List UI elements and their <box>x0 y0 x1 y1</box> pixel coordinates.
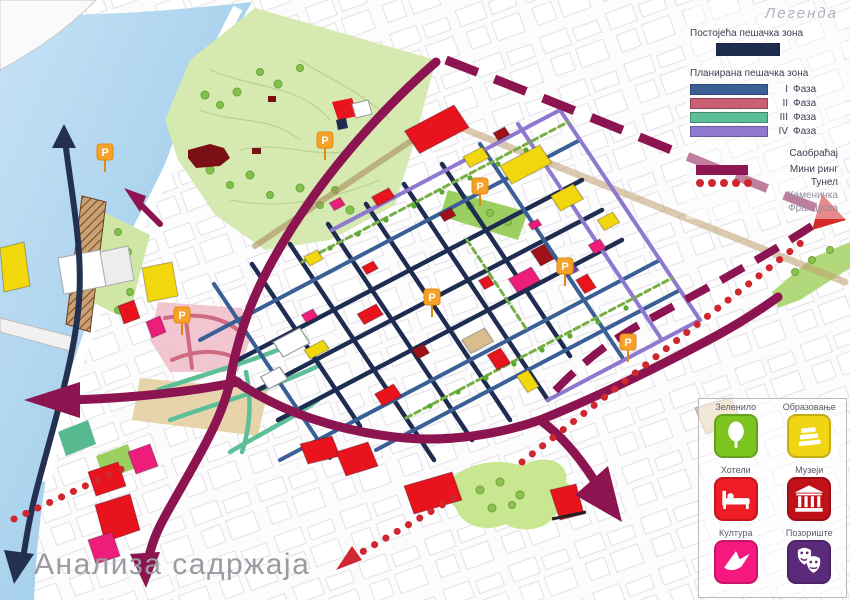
phase-2-swatch <box>690 98 768 109</box>
education-icon <box>787 414 831 458</box>
mini-ring-row: Мини ринг <box>690 163 840 176</box>
tunnel-row: Тунел <box>690 176 840 189</box>
theater-masks-icon <box>787 540 831 584</box>
svg-text:P: P <box>476 181 483 193</box>
planned-zone-label: Планирана пешачка зона <box>690 68 840 80</box>
map-legend: Легенда Постојећа пешачка зона Планирана… <box>686 4 844 219</box>
phase-3-row: III Фаза <box>690 111 840 124</box>
existing-zone-swatch <box>716 43 780 56</box>
svg-text:P: P <box>624 337 631 349</box>
svg-text:P: P <box>101 147 108 159</box>
amenities-legend: Зеленило Образовање Хотели Музеји Култур… <box>698 398 847 598</box>
legend-heading: Легенда <box>690 8 838 20</box>
svg-text:P: P <box>428 292 435 304</box>
tree-icon <box>714 414 758 458</box>
museum-icon <box>787 477 831 521</box>
mini-ring-swatch <box>696 165 748 175</box>
page-title: Анализа садржаја <box>34 548 310 582</box>
phase-3-swatch <box>690 112 768 123</box>
svg-text:P: P <box>321 135 328 147</box>
culture-bird-icon <box>714 540 758 584</box>
phase-4-swatch <box>690 126 768 137</box>
svg-text:P: P <box>561 261 568 273</box>
phase-1-swatch <box>690 84 768 95</box>
francuska-row: Француска <box>690 202 840 215</box>
phase-1-row: I Фаза <box>690 83 840 96</box>
traffic-heading: Саобраћај <box>690 148 838 160</box>
svg-text:P: P <box>178 310 185 322</box>
tunnel-dots-symbol <box>696 179 752 187</box>
phase-2-row: II Фаза <box>690 97 840 110</box>
hotel-bed-icon <box>714 477 758 521</box>
analysis-map-page: P P P P P P P Легенда Постојећа пешачк <box>0 0 850 600</box>
existing-zone-label: Постојећа пешачка зона <box>690 28 840 40</box>
phase-4-row: IV Фаза <box>690 125 840 138</box>
kamenicka-row: Каменичка <box>690 189 840 202</box>
